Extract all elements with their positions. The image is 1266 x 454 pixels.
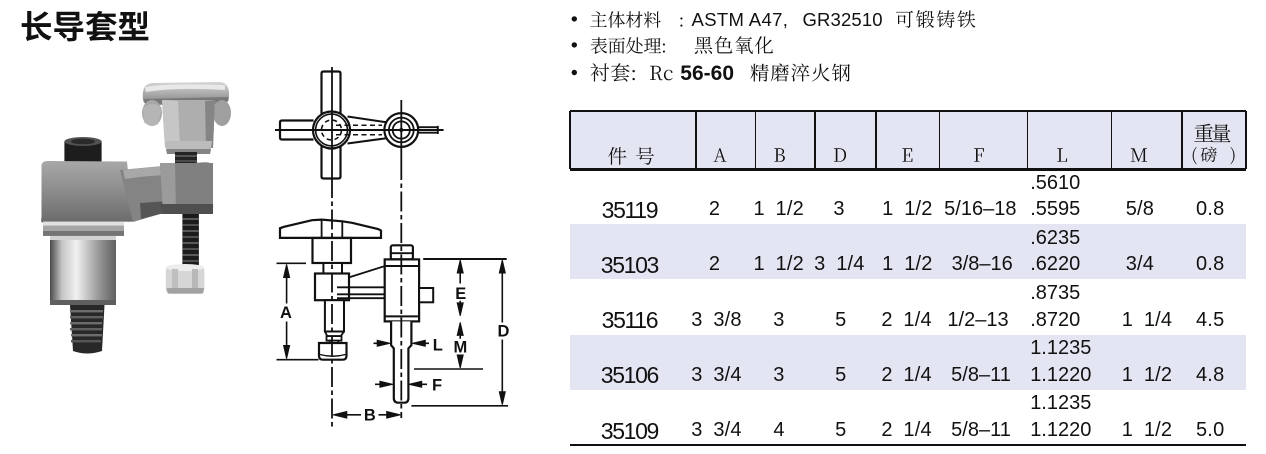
- svg-text:B: B: [364, 407, 376, 425]
- svg-text:M: M: [454, 339, 468, 357]
- svg-text:F: F: [432, 376, 442, 394]
- svg-text:L: L: [433, 337, 443, 355]
- svg-text:E: E: [455, 285, 466, 303]
- svg-text:D: D: [498, 322, 510, 340]
- svg-text:A: A: [280, 304, 292, 322]
